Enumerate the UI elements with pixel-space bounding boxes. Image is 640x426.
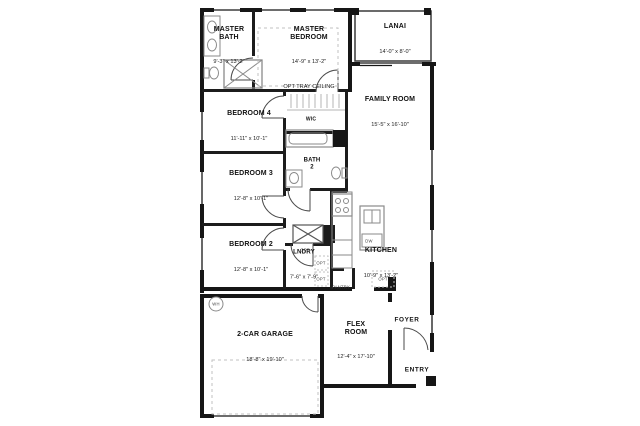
room-dims: 14'-0" x 8'-0"	[379, 49, 410, 55]
opt-label: OPT	[316, 277, 325, 282]
room-label-family-room: FAMILY ROOM 15'-5" x 16'-10"	[365, 78, 415, 146]
room-dims: 12'-8" x 10'-1"	[229, 196, 273, 202]
room-dims: 18'-8" x 19'-10"	[237, 357, 293, 363]
room-name: 2-CAR GARAGE	[237, 331, 293, 339]
room-name: BEDROOM 3	[229, 170, 273, 178]
floorplan-canvas: MASTER BATH 9'-3" x 13'-2" MASTER BEDROO…	[0, 0, 640, 426]
room-label-master-bath: MASTER BATH 9'-3" x 13'-2"	[213, 8, 244, 84]
dishwasher-label: DW	[365, 239, 372, 244]
room-name: BEDROOM 4	[227, 110, 271, 118]
room-name: MASTER BATH	[213, 26, 244, 42]
room-name: ENTRY	[405, 366, 429, 373]
room-name: BEDROOM 2	[229, 241, 273, 249]
room-label-laundry: LNDRY 7'-6" x 7'-9"	[290, 232, 318, 299]
room-dims: 15'-5" x 16'-10"	[365, 122, 415, 128]
room-label-lanai: LANAI 14'-0" x 8'-0"	[379, 5, 410, 73]
room-label-bedroom-4: BEDROOM 4 11'-11" x 10'-1"	[227, 92, 271, 160]
room-label-foyer: FOYER	[394, 299, 419, 342]
room-dims: 12'-4" x 17'-10"	[337, 355, 375, 361]
room-label-garage: 2-CAR GARAGE 18'-8" x 19'-10"	[237, 313, 293, 381]
room-name: MASTER BEDROOM	[283, 26, 334, 42]
opt-label: OPT	[378, 277, 387, 282]
room-label-entry: ENTRY	[405, 349, 429, 392]
room-name: FOYER	[394, 316, 419, 323]
room-label-master-bedroom: MASTER BEDROOM 14'-9" x 13'-2" OPT TRAY …	[283, 8, 334, 108]
room-label-wic: WIC	[306, 99, 316, 140]
room-dims: 12'-8" x 10'-1"	[229, 267, 273, 273]
room-name: FAMILY ROOM	[365, 96, 415, 104]
room-dims: 7'-6" x 7'-9"	[290, 274, 318, 280]
pantry-label: PANTRY	[332, 285, 350, 290]
room-name: WIC	[306, 117, 316, 123]
room-note: OPT TRAY CEILING	[283, 84, 334, 90]
room-name: KITCHEN	[364, 247, 398, 255]
room-name: LANAI	[379, 23, 410, 31]
room-label-flex-room: FLEX ROOM 12'-4" x 17'-10"	[337, 303, 375, 379]
room-dims: 11'-11" x 10'-1"	[227, 136, 271, 142]
room-label-bedroom-2: BEDROOM 2 12'-8" x 10'-1"	[229, 223, 273, 291]
room-label-bedroom-3: BEDROOM 3 12'-8" x 10'-1"	[229, 152, 273, 220]
opt-label: OPT	[316, 261, 325, 266]
room-name: FLEX ROOM	[337, 321, 375, 337]
room-name: BATH 2	[304, 157, 321, 170]
room-dims: 14'-9" x 13'-2"	[283, 60, 334, 66]
opt-label: OPT	[300, 248, 309, 253]
water-heater-label: WH	[212, 302, 219, 307]
room-dims: 9'-3" x 13'-2"	[213, 60, 244, 66]
room-label-bath-2: BATH 2	[304, 139, 321, 188]
